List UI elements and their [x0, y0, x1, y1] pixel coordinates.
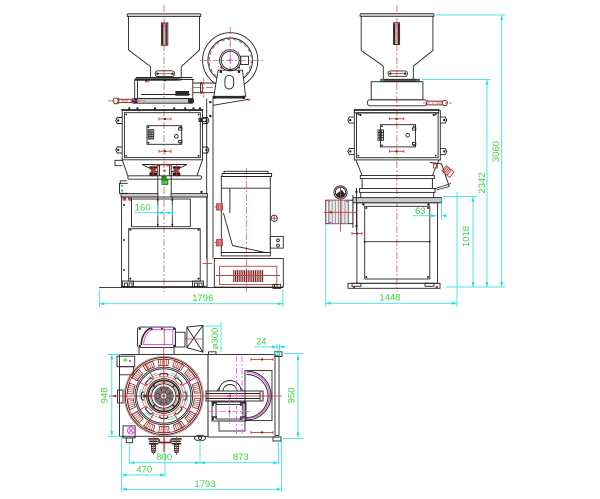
- svg-text:800: 800: [156, 452, 172, 463]
- svg-text:2342: 2342: [477, 172, 488, 193]
- svg-text:1448: 1448: [379, 293, 400, 304]
- svg-text:1796: 1796: [192, 293, 213, 304]
- svg-text:950: 950: [287, 387, 298, 403]
- svg-text:873: 873: [233, 452, 249, 463]
- svg-text:1793: 1793: [194, 479, 215, 490]
- svg-text:470: 470: [136, 465, 152, 476]
- svg-text:24: 24: [256, 336, 267, 347]
- svg-text:3060: 3060: [491, 141, 502, 162]
- svg-text:ø300: ø300: [210, 328, 221, 350]
- svg-text:1018: 1018: [461, 226, 472, 247]
- svg-text:948: 948: [99, 387, 110, 403]
- svg-text:160: 160: [135, 203, 151, 214]
- svg-text:63: 63: [415, 206, 426, 217]
